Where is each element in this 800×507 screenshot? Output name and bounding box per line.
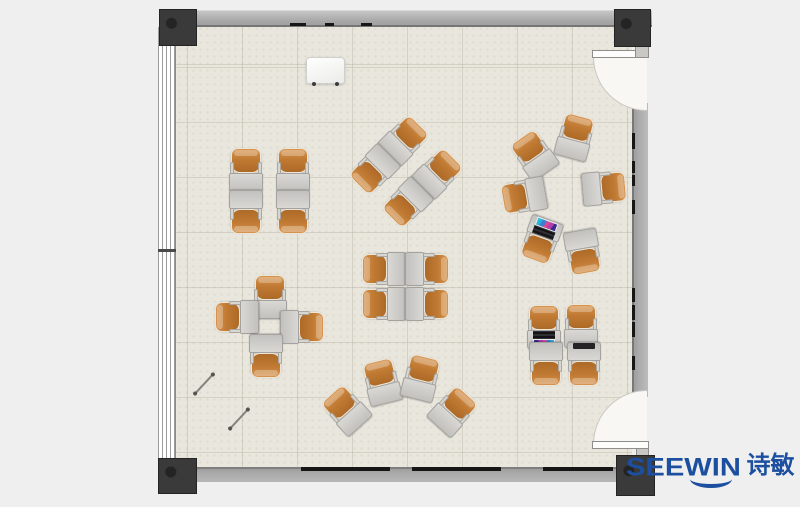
- desk-top: [249, 334, 283, 353]
- brand-chinese-name: 诗敏: [746, 452, 794, 479]
- wall-trim-mark: [412, 467, 501, 471]
- brand-wordmark: SEEWIN: [626, 455, 741, 479]
- column-top-left: [159, 9, 197, 46]
- desk-chair-unit: [405, 252, 449, 286]
- floor-plan-stage: SEEWIN 诗敏: [0, 0, 800, 507]
- desk-chair-unit: [562, 227, 603, 276]
- desk-chair-unit: [229, 190, 263, 234]
- desk-chair-unit: [215, 300, 259, 334]
- desk-chair-unit: [276, 190, 310, 234]
- desk-chair-unit: [362, 252, 406, 286]
- chair-seat: [424, 254, 449, 284]
- wall-trim-mark: [361, 23, 372, 26]
- desk-top: [276, 190, 310, 209]
- chair-seat: [362, 254, 387, 284]
- desk-chair-unit: [581, 169, 628, 207]
- desk-chair-unit: [229, 148, 263, 192]
- wall-trim-mark: [632, 200, 635, 214]
- chair-seat: [531, 361, 561, 386]
- desk-chair-unit: [405, 287, 449, 321]
- wall-trim-mark: [543, 467, 613, 471]
- chair-seat: [215, 302, 240, 332]
- desk-chair-unit: [249, 334, 283, 378]
- column-bottom-left: [158, 458, 197, 494]
- desk-top: [229, 190, 263, 209]
- chair-seat: [600, 171, 628, 203]
- desk-top: [581, 171, 603, 207]
- chair-seat: [529, 305, 559, 330]
- chair-seat: [299, 312, 324, 342]
- chair-seat: [566, 304, 596, 329]
- wall-top: [168, 10, 652, 27]
- desk-top: [240, 300, 259, 334]
- wall-trim-mark: [290, 23, 306, 26]
- desk-chair-unit: [276, 148, 310, 192]
- window-wall: [158, 27, 176, 467]
- chair-seat: [255, 275, 285, 300]
- chair-seat: [568, 246, 602, 276]
- chair-seat: [278, 148, 308, 173]
- door-frame-top-right: [635, 46, 649, 58]
- wall-trim-mark: [325, 23, 334, 26]
- tablet-device: [573, 343, 595, 349]
- chair-seat: [424, 289, 449, 319]
- wall-trim-mark: [632, 356, 635, 370]
- chair-seat: [231, 209, 261, 234]
- logo-smile-arc: [690, 479, 732, 488]
- wall-trim-mark: [632, 161, 635, 173]
- column-top-right: [614, 9, 651, 47]
- wall-trim-mark: [632, 175, 635, 186]
- wall-trim-mark: [632, 133, 635, 149]
- wall-trim-mark: [632, 288, 635, 302]
- desk-chair-unit: [567, 342, 601, 386]
- desk-top: [405, 252, 424, 286]
- wall-trim-mark: [632, 305, 635, 320]
- window-mullion-tick: [158, 249, 176, 252]
- desk-top: [387, 287, 406, 321]
- room-floor: [176, 25, 632, 468]
- desk-chair-unit: [362, 287, 406, 321]
- brand-logo: SEEWIN 诗敏: [626, 452, 794, 479]
- wall-trim-mark: [632, 322, 635, 337]
- desk-top: [387, 252, 406, 286]
- chair-seat: [278, 209, 308, 234]
- desk-top: [405, 287, 424, 321]
- wall-trim-mark: [301, 467, 390, 471]
- chair-seat: [569, 361, 599, 386]
- desk-top: [529, 342, 563, 361]
- flipchart-whiteboard: [306, 57, 345, 84]
- chair-seat: [251, 353, 281, 378]
- chair-seat: [231, 148, 261, 173]
- desk-chair-unit: [280, 310, 324, 344]
- chair-seat: [362, 289, 387, 319]
- desk-chair-unit: [529, 342, 563, 386]
